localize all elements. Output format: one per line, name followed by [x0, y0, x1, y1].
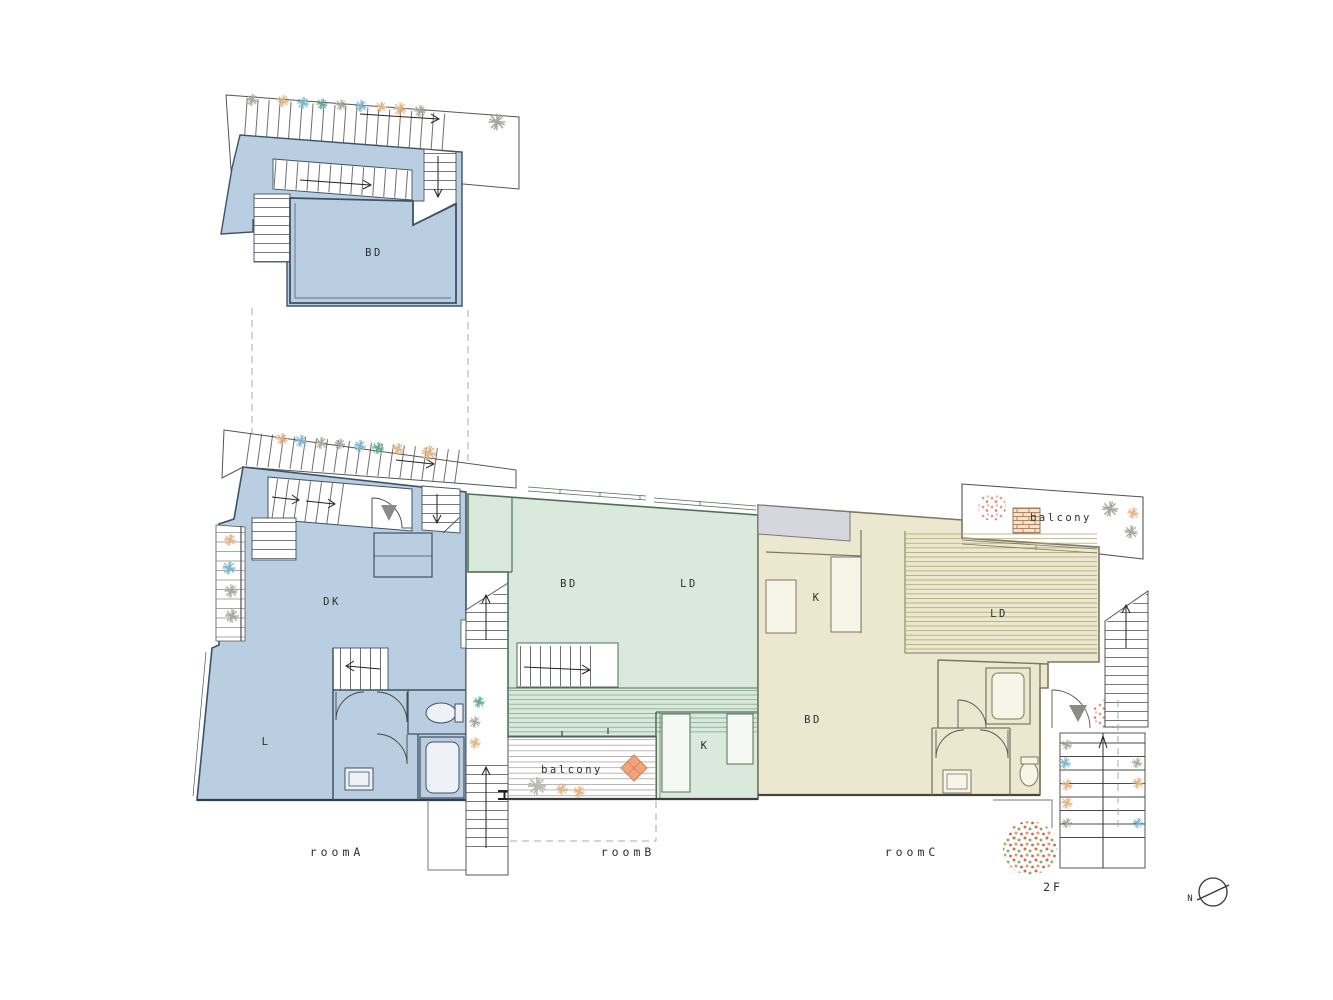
- stair-strip-lower-treads: [466, 758, 508, 852]
- flower-icon: [393, 102, 406, 115]
- flower-icon: [473, 696, 484, 707]
- roomB-balcony-label: balcony: [541, 764, 603, 776]
- flower-icon: [1132, 758, 1142, 768]
- flower-icon: [392, 443, 404, 455]
- tree-icon: [978, 493, 1006, 521]
- roomB-site-dashed: [510, 801, 656, 841]
- washing-machine-icon: [345, 768, 373, 790]
- stair-strip-upper-treads: [466, 585, 508, 650]
- flower-icon: [1102, 501, 1118, 517]
- flower-icon: [295, 435, 308, 448]
- shared-stair-strip: [466, 583, 511, 875]
- flower-icon: [1132, 777, 1143, 788]
- flower-icon: [489, 114, 506, 131]
- flower-icon: [246, 94, 258, 106]
- roomC-ld-label: LD: [990, 608, 1008, 620]
- flower-icon: [276, 433, 288, 445]
- roomC-balcony-label: balcony: [1030, 512, 1092, 524]
- roomC-unit-label: roomC: [885, 845, 940, 859]
- flower-icon: [1059, 757, 1070, 768]
- roomA-upper-stair-treads: [422, 487, 460, 526]
- tree-icon: [1003, 821, 1057, 875]
- floor-plan-drawing: BD: [0, 0, 1333, 1000]
- flower-icon: [573, 786, 585, 798]
- roomA-closet: [374, 533, 432, 577]
- flower-icon: [297, 97, 309, 109]
- roomB-kitchen-counter-left: [662, 714, 690, 792]
- floor-caption: 2F: [1043, 880, 1063, 894]
- roomC-kitchen-label: K: [813, 592, 822, 604]
- flower-icon: [469, 716, 480, 727]
- flower-icon: [372, 442, 384, 454]
- roomC-bd-label: BD: [804, 714, 822, 726]
- toilet-icon: [426, 703, 463, 723]
- roomC-kitchen-counter-left: [766, 580, 796, 633]
- roomB-unit-label: roomB: [601, 845, 656, 859]
- flower-icon: [528, 777, 546, 795]
- north-label: N: [1187, 894, 1192, 904]
- roomC-kitchen-counter-right: [831, 557, 861, 632]
- roomA-living-label: L: [262, 736, 271, 748]
- loft-landing-stair-treads: [424, 150, 456, 195]
- loft-unit: BD: [221, 94, 519, 306]
- flower-icon: [1061, 779, 1072, 790]
- flower-icon: [336, 100, 347, 111]
- loft-return-stair-treads: [254, 194, 290, 262]
- roomB-kitchen-label: K: [701, 740, 710, 752]
- flower-icon: [224, 584, 237, 597]
- flower-icon: [277, 95, 289, 107]
- roomA-dk-step-stair-treads: [252, 518, 296, 560]
- toilet-icon: [1020, 757, 1038, 786]
- floor-plan-page: BD: [0, 0, 1333, 1000]
- roomA-dk-label: DK: [323, 596, 341, 608]
- flower-icon: [1127, 507, 1138, 518]
- flower-icon: [1062, 818, 1072, 828]
- unit-roomB: BD LD K balcony: [468, 487, 758, 841]
- flower-icon: [422, 446, 437, 461]
- flower-icon: [354, 440, 366, 452]
- washing-machine-icon: [943, 770, 971, 793]
- flower-icon: [414, 105, 426, 117]
- flower-icon: [222, 561, 235, 574]
- bathtub-icon: [986, 668, 1030, 724]
- flower-icon: [225, 609, 239, 623]
- roomB-kitchen-counter-right: [727, 714, 753, 764]
- roomB-bd-label: BD: [560, 578, 578, 590]
- flower-icon: [1133, 818, 1143, 828]
- flower-icon: [1124, 525, 1137, 538]
- flower-icon: [335, 439, 346, 450]
- flower-icon: [317, 99, 328, 110]
- flower-icon: [1061, 797, 1072, 808]
- flower-icon: [355, 100, 367, 112]
- north-compass-icon: N: [1187, 878, 1229, 906]
- roomB-stair-treads: [518, 646, 597, 686]
- flower-icon: [224, 534, 236, 546]
- bathtub-icon: [420, 737, 464, 798]
- flower-icon: [469, 737, 480, 748]
- roomB-ld-label: LD: [680, 578, 698, 590]
- roomC-entrance-marker: [1069, 705, 1087, 722]
- flower-icon: [376, 102, 387, 113]
- roomA-unit-label: roomA: [310, 845, 365, 859]
- roomA-lower-terrace-outline: [428, 800, 466, 870]
- flower-icon: [556, 783, 567, 794]
- flower-icon: [1062, 740, 1072, 750]
- flower-icon: [315, 437, 327, 449]
- loft-bd-label: BD: [365, 247, 383, 259]
